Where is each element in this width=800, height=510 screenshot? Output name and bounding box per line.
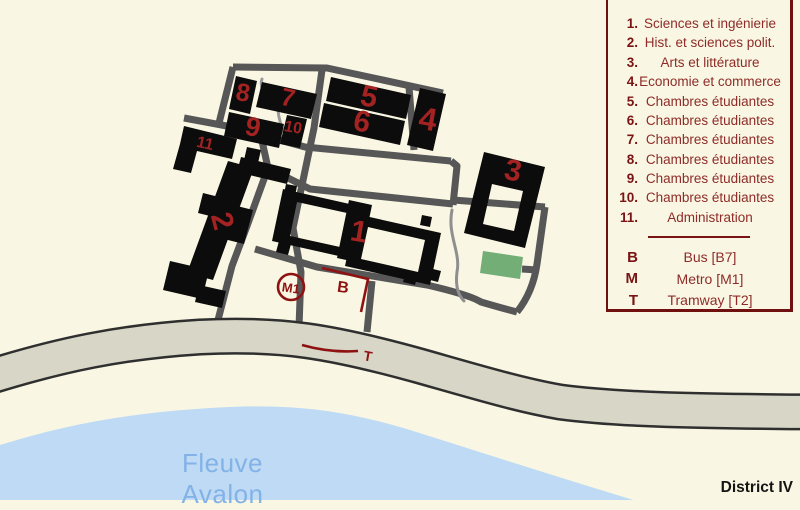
legend-transit-key: M (608, 271, 638, 286)
legend-item-number: 3. (608, 56, 638, 70)
legend-transit-label: Tramway [T2] (638, 293, 790, 307)
district-label: District IV (721, 479, 793, 497)
legend-item-number: 8. (608, 153, 638, 167)
legend-item-2: 2. Hist. et sciences polit. (608, 33, 790, 52)
legend-item-9: 9. Chambres étudiantes (608, 169, 790, 188)
legend-item-8: 8. Chambres étudiantes (608, 150, 790, 169)
legend-item-1: 1. Sciences et ingénierie (608, 14, 790, 33)
legend-transit-key: T (608, 293, 638, 308)
numeral-10: 10 (283, 118, 304, 138)
campus-map-page: { "map": { "building_labels": [ {"id":"1… (0, 0, 800, 500)
legend-panel: 1. Sciences et ingénierie 2. Hist. et sc… (606, 0, 793, 312)
main-road-surface (0, 336, 800, 412)
legend-item-label: Chambres étudiantes (638, 95, 790, 109)
legend-item-6: 6. Chambres étudiantes (608, 111, 790, 130)
legend-transit-key: B (608, 250, 638, 265)
legend-item-3: 3. Arts et littérature (608, 53, 790, 72)
legend-item-number: 4. (608, 75, 638, 89)
legend-transit-metro: M Metro [M1] (608, 268, 790, 290)
legend-separator (648, 236, 750, 238)
legend-item-label: Administration (638, 211, 790, 225)
legend-item-label: Economie et commerce (638, 75, 790, 89)
bus-stop-label: B (336, 279, 350, 297)
legend-item-number: 5. (608, 95, 638, 109)
legend-item-number: 11. (608, 211, 638, 225)
legend-item-number: 6. (608, 114, 638, 128)
legend-transit-bus: B Bus [B7] (608, 246, 790, 268)
legend-item-number: 10. (608, 191, 638, 205)
road-busplaza-right (367, 281, 372, 332)
sports-field (480, 251, 523, 279)
river-shape (0, 406, 640, 500)
legend-item-5: 5. Chambres étudiantes (608, 92, 790, 111)
legend-item-11: 11. Administration (608, 208, 790, 227)
legend-item-label: Chambres étudiantes (638, 153, 790, 167)
legend-item-label: Hist. et sciences polit. (638, 36, 790, 50)
legend-item-number: 2. (608, 36, 638, 50)
legend-item-label: Chambres étudiantes (638, 172, 790, 186)
road-field-stub (522, 269, 537, 270)
legend-item-4: 4. Economie et commerce (608, 72, 790, 91)
legend-item-number: 9. (608, 172, 638, 186)
legend-item-number: 1. (608, 17, 638, 31)
building-1-tab-e (284, 184, 297, 196)
legend-transit-label: Metro [M1] (638, 272, 790, 286)
legend-item-label: Sciences et ingénierie (638, 17, 790, 31)
legend-item-7: 7. Chambres étudiantes (608, 130, 790, 149)
metro-station-label: M1 (281, 279, 301, 296)
river-name-label: Fleuve Avalon (150, 448, 295, 510)
legend-item-label: Chambres étudiantes (638, 133, 790, 147)
legend-item-label: Arts et littérature (638, 56, 790, 70)
legend-item-number: 7. (608, 133, 638, 147)
path-curvy (451, 210, 464, 301)
legend-item-10: 10. Chambres étudiantes (608, 189, 790, 208)
legend-transit-label: Bus [B7] (638, 250, 790, 264)
main-road (0, 336, 800, 412)
legend-item-label: Chambres étudiantes (638, 191, 790, 205)
legend-item-label: Chambres étudiantes (638, 114, 790, 128)
building-1-tab-a (420, 215, 432, 227)
legend-transit-tram: T Tramway [T2] (608, 289, 790, 311)
